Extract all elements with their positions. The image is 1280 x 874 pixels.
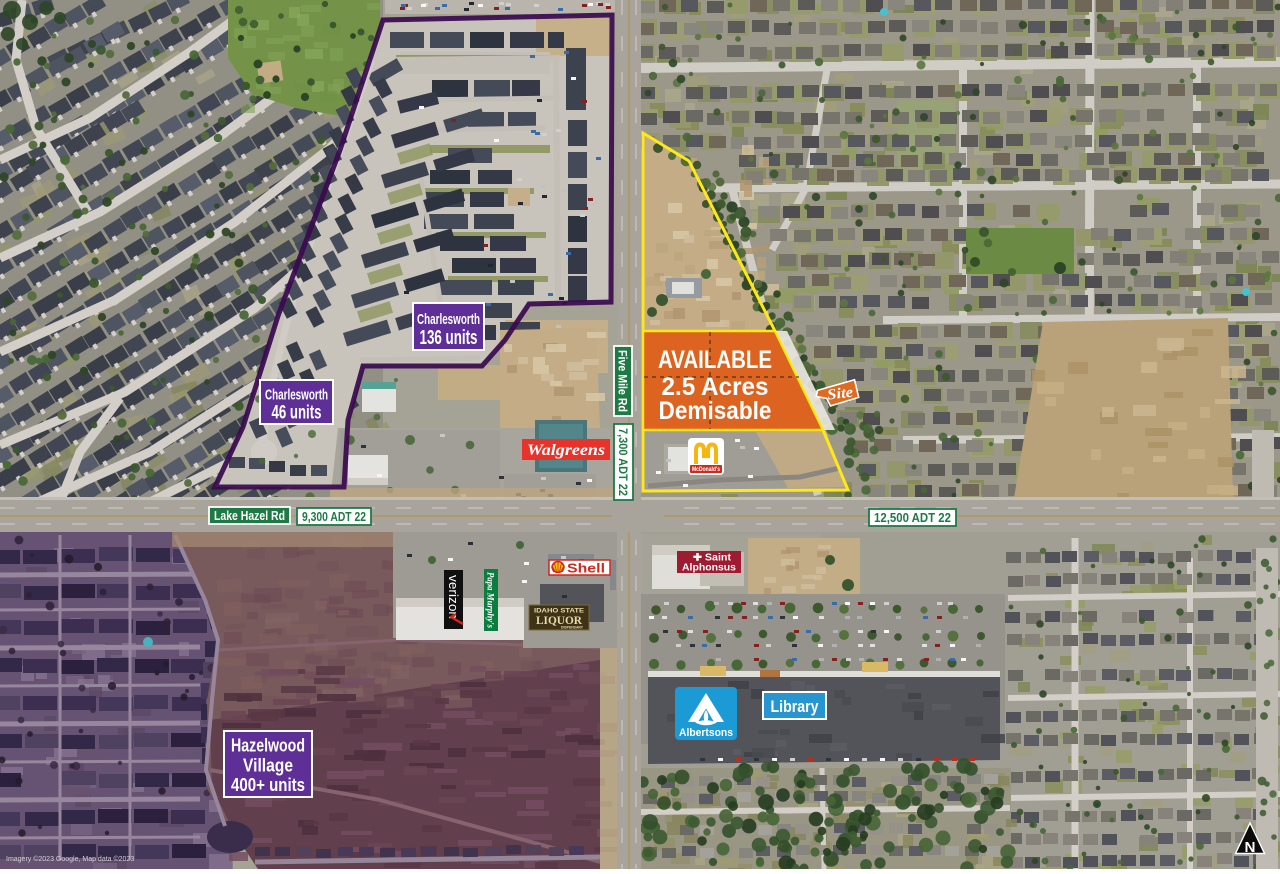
svg-text:Imagery ©2023 Google, Map data: Imagery ©2023 Google, Map data ©2023 bbox=[6, 855, 134, 863]
svg-text:9,300 ADT 22: 9,300 ADT 22 bbox=[302, 509, 366, 524]
svg-text:46 units: 46 units bbox=[272, 402, 322, 423]
svg-text:Lake Hazel Rd: Lake Hazel Rd bbox=[214, 508, 285, 523]
svg-text:Papa Murphy's: Papa Murphy's bbox=[486, 572, 496, 628]
svg-text:Village: Village bbox=[243, 755, 293, 775]
svg-text:Library: Library bbox=[771, 697, 819, 716]
svg-text:Five Mile Rd: Five Mile Rd bbox=[616, 350, 630, 412]
svg-text:Site: Site bbox=[826, 385, 854, 404]
svg-text:Alphonsus: Alphonsus bbox=[682, 563, 736, 574]
svg-text:12,500 ADT 22: 12,500 ADT 22 bbox=[874, 510, 951, 525]
svg-text:7,300 ADT 22: 7,300 ADT 22 bbox=[616, 428, 630, 496]
svg-text:McDonald's: McDonald's bbox=[692, 467, 721, 473]
svg-text:Shell: Shell bbox=[567, 561, 605, 576]
svg-text:136 units: 136 units bbox=[420, 327, 478, 349]
svg-text:Demisable: Demisable bbox=[659, 397, 772, 425]
svg-text:Charlesworth: Charlesworth bbox=[265, 387, 328, 404]
svg-text:AVAILABLE: AVAILABLE bbox=[658, 346, 772, 374]
svg-text:Hazelwood: Hazelwood bbox=[231, 736, 305, 756]
svg-text:DISPENSARY: DISPENSARY bbox=[561, 625, 583, 630]
svg-text:Albertsons: Albertsons bbox=[679, 727, 733, 739]
svg-text:Walgreens: Walgreens bbox=[527, 442, 605, 459]
svg-text:Charlesworth: Charlesworth bbox=[417, 311, 480, 328]
svg-text:N: N bbox=[1245, 839, 1256, 856]
svg-text:verizon: verizon bbox=[446, 575, 460, 619]
svg-text:400+ units: 400+ units bbox=[231, 775, 305, 795]
